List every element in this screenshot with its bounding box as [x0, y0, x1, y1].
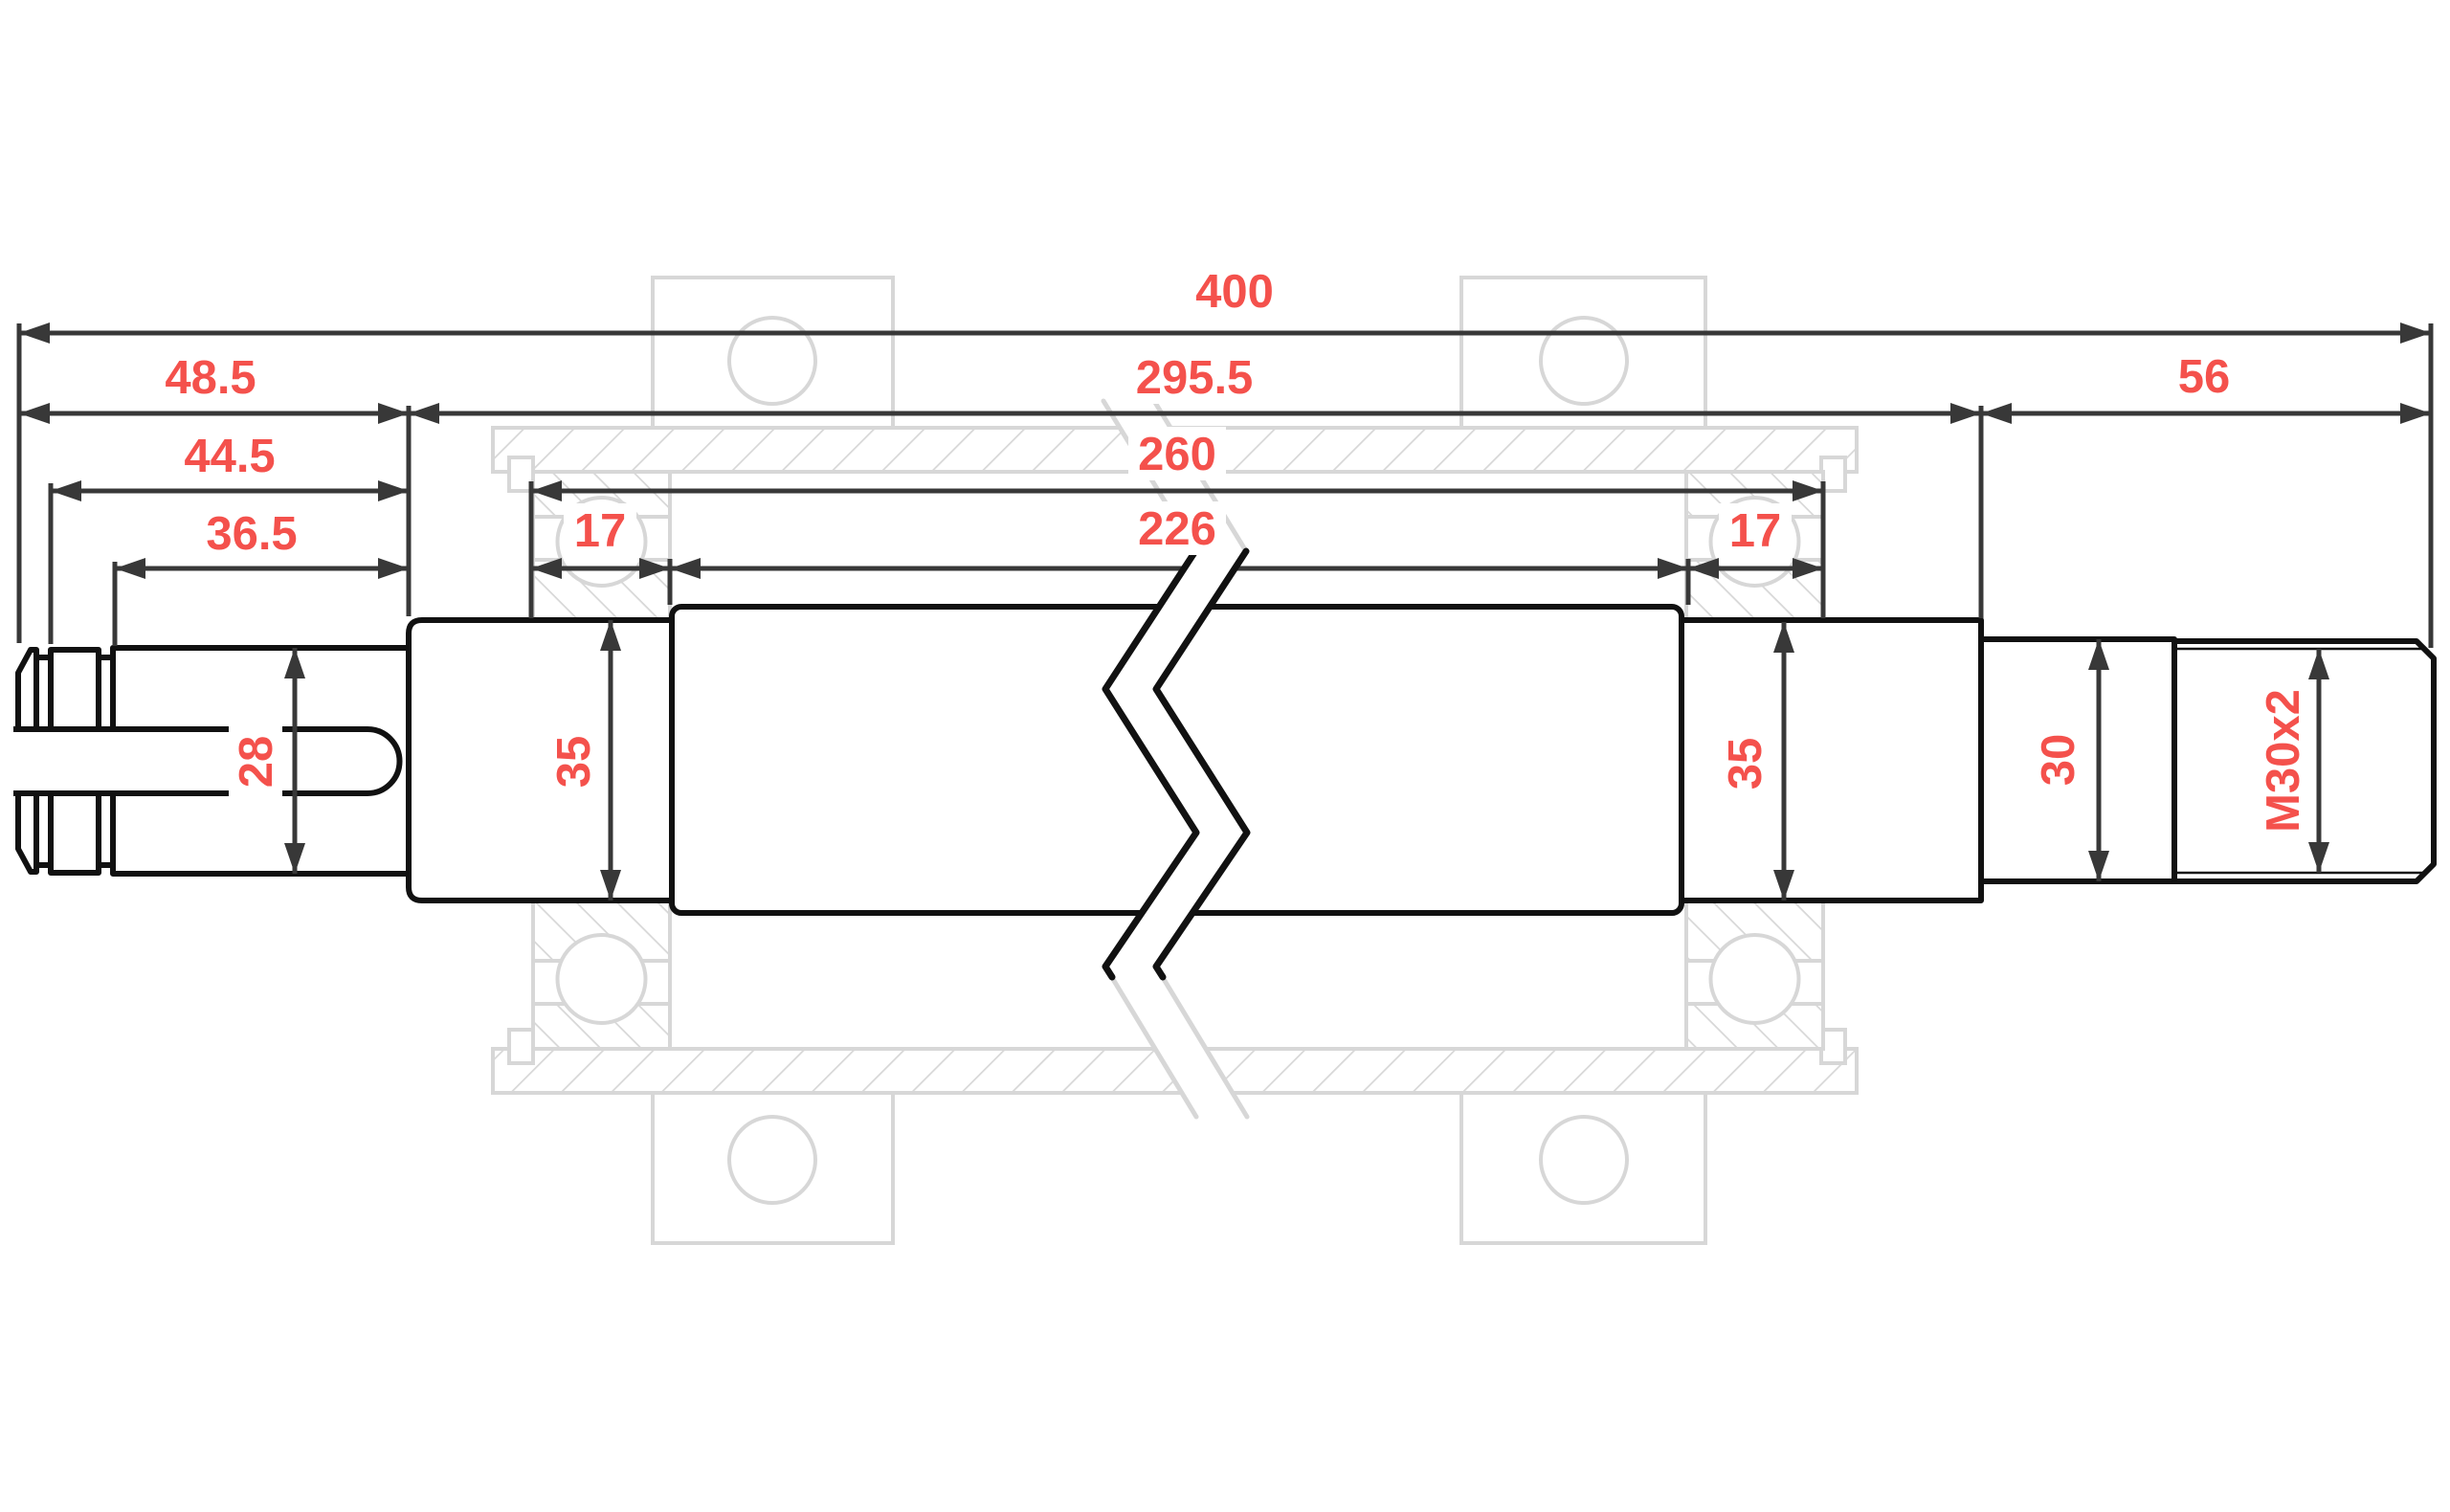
- keyway-slot: [13, 729, 400, 793]
- dim-label-M30x2: M30x2: [2258, 689, 2309, 833]
- arrowhead: [1950, 403, 1981, 424]
- dim-label-30: 30: [2033, 734, 2084, 787]
- dim-label-400: 400: [1195, 266, 1274, 318]
- dim-label-group: 260: [1128, 427, 1226, 480]
- dim-label-44.5: 44.5: [184, 431, 275, 482]
- arrowhead: [409, 403, 439, 424]
- dim-label-226: 226: [1138, 503, 1216, 555]
- dim-label-17: 17: [574, 505, 627, 557]
- arrowhead: [670, 558, 701, 579]
- dim-label-group: 28: [229, 725, 282, 798]
- dim-label-group: 35: [1718, 727, 1771, 800]
- arrowhead: [378, 558, 409, 579]
- technical-drawing-page: 40048.5295.55644.526036.5172261728353530…: [0, 0, 2450, 1512]
- dim-label-group: 17: [564, 503, 636, 557]
- dim-label-group: 295.5: [1121, 350, 1268, 404]
- dim-label-group: 30: [2031, 723, 2084, 796]
- dim-label-17: 17: [1729, 505, 1782, 557]
- arrowhead: [19, 322, 50, 344]
- dim-label-36.5: 36.5: [206, 508, 297, 560]
- dim-label-group: 48.5: [149, 350, 272, 404]
- dim-label-group: 400: [1186, 264, 1283, 318]
- dim-label-group: 36.5: [190, 506, 313, 560]
- bearing-ball: [1711, 935, 1799, 1023]
- dim-label-group: M30x2: [2256, 687, 2309, 834]
- arrowhead: [1981, 403, 2012, 424]
- arrowhead: [1658, 558, 1688, 579]
- arrowhead: [2400, 322, 2431, 344]
- housing-lug: [509, 1030, 533, 1063]
- arrowhead: [2400, 403, 2431, 424]
- arrowhead: [19, 403, 50, 424]
- dim-label-28: 28: [231, 736, 282, 789]
- arrowhead: [378, 480, 409, 501]
- bolt-hole: [729, 1117, 815, 1203]
- dim-label-group: 35: [546, 725, 600, 798]
- shaft-dimension-drawing: 40048.5295.55644.526036.5172261728353530…: [0, 0, 2450, 1512]
- bearing-seat-left: [409, 620, 672, 901]
- arrowhead: [378, 403, 409, 424]
- dim-label-group: 56: [2168, 349, 2240, 403]
- dim-label-group: 44.5: [168, 429, 291, 482]
- dim-label-group: 226: [1128, 501, 1226, 555]
- dim-label-260: 260: [1138, 429, 1216, 480]
- bearing-ball: [558, 935, 646, 1023]
- bolt-hole: [1541, 1117, 1627, 1203]
- dim-label-48.5: 48.5: [165, 352, 256, 404]
- dim-label-35: 35: [1720, 738, 1771, 790]
- dim-label-35: 35: [548, 736, 600, 789]
- dim-label-295.5: 295.5: [1136, 352, 1254, 404]
- dim-label-56: 56: [2178, 351, 2231, 403]
- dim-label-group: 17: [1719, 503, 1792, 557]
- arrowhead: [115, 558, 145, 579]
- arrowhead: [51, 480, 81, 501]
